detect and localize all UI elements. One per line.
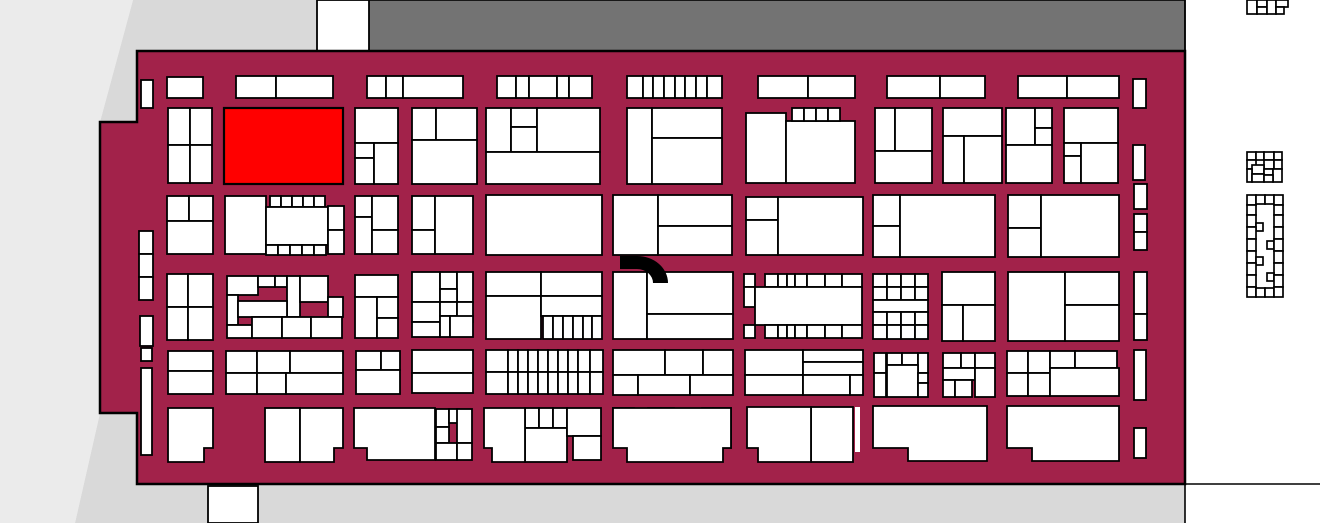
booth[interactable] — [538, 350, 548, 372]
booth[interactable] — [744, 274, 755, 287]
building-footprint — [1247, 152, 1282, 182]
booth[interactable] — [816, 108, 828, 121]
booth[interactable] — [758, 76, 808, 98]
booth[interactable] — [1008, 272, 1065, 341]
booth[interactable] — [508, 372, 518, 394]
booth[interactable] — [287, 276, 300, 317]
footprint-cell — [1257, 0, 1267, 7]
booth[interactable] — [302, 245, 314, 255]
booth[interactable] — [412, 196, 435, 230]
booth[interactable] — [303, 196, 314, 207]
booth[interactable] — [328, 230, 344, 254]
booth[interactable] — [252, 317, 282, 338]
booth[interactable] — [440, 302, 457, 316]
booth[interactable] — [537, 108, 600, 152]
booth[interactable] — [707, 76, 722, 98]
booth[interactable] — [873, 287, 887, 300]
booth[interactable] — [412, 230, 435, 254]
booth[interactable] — [372, 196, 398, 230]
booth[interactable] — [744, 325, 755, 338]
booth[interactable] — [139, 277, 153, 300]
booth[interactable] — [901, 325, 915, 339]
booth[interactable] — [1133, 145, 1145, 180]
booth[interactable] — [573, 316, 583, 339]
booth[interactable] — [511, 108, 537, 127]
booth[interactable] — [1134, 232, 1147, 250]
booth[interactable] — [961, 353, 975, 368]
booth[interactable] — [803, 350, 863, 362]
booth[interactable] — [436, 409, 449, 427]
booth[interactable] — [436, 427, 449, 443]
booth[interactable] — [1081, 143, 1118, 183]
booth[interactable] — [548, 350, 558, 372]
booth[interactable] — [873, 312, 887, 325]
top-entrance-corridor[interactable] — [317, 0, 369, 51]
booth[interactable] — [887, 353, 902, 365]
booth[interactable] — [1134, 314, 1147, 340]
booth[interactable] — [1007, 373, 1028, 396]
booth[interactable] — [168, 145, 190, 183]
booth[interactable] — [168, 371, 213, 394]
booth[interactable] — [266, 207, 328, 245]
booth[interactable] — [525, 428, 567, 462]
booth[interactable] — [486, 108, 511, 152]
booth[interactable] — [943, 368, 975, 380]
booth[interactable] — [1035, 108, 1052, 128]
booth[interactable] — [1050, 368, 1119, 396]
booth[interactable] — [355, 108, 398, 143]
booth[interactable] — [539, 408, 553, 428]
booth[interactable] — [792, 108, 804, 121]
booth[interactable] — [745, 375, 803, 395]
booth[interactable] — [436, 108, 477, 140]
booth[interactable] — [1134, 272, 1147, 314]
booth[interactable] — [1035, 128, 1052, 145]
booth[interactable] — [573, 436, 601, 460]
booth[interactable] — [412, 140, 477, 184]
booth[interactable] — [486, 195, 602, 255]
booth[interactable] — [828, 108, 840, 121]
booth[interactable] — [1065, 305, 1119, 341]
booth[interactable] — [652, 108, 722, 138]
booth[interactable] — [511, 127, 537, 152]
booth[interactable] — [658, 195, 732, 226]
booth[interactable] — [525, 408, 539, 428]
booth[interactable] — [567, 408, 601, 436]
booth[interactable] — [874, 373, 886, 397]
footprint-cell — [1267, 273, 1274, 281]
booth[interactable] — [311, 317, 342, 338]
booth[interactable] — [613, 272, 647, 339]
booth[interactable] — [1064, 156, 1081, 183]
booth[interactable] — [583, 316, 592, 339]
booth[interactable] — [807, 325, 825, 338]
booth[interactable] — [386, 76, 403, 98]
booth[interactable] — [355, 143, 374, 158]
booth[interactable] — [372, 230, 398, 254]
footprint-cell — [1256, 223, 1263, 231]
booth[interactable] — [281, 196, 292, 207]
booth[interactable] — [765, 274, 778, 287]
booth[interactable] — [963, 305, 995, 341]
booth[interactable] — [627, 108, 652, 184]
booth[interactable] — [486, 152, 600, 184]
booth[interactable] — [355, 275, 398, 297]
booth[interactable] — [167, 196, 189, 221]
booth[interactable] — [811, 407, 853, 462]
booth[interactable] — [887, 312, 901, 325]
booth[interactable] — [225, 196, 266, 254]
booth[interactable] — [803, 362, 863, 375]
booth[interactable] — [1134, 184, 1147, 209]
booth[interactable] — [440, 289, 457, 302]
booth[interactable] — [486, 296, 541, 339]
booth[interactable] — [141, 348, 152, 361]
booth[interactable] — [643, 76, 653, 98]
booth[interactable] — [568, 372, 578, 394]
booth[interactable] — [236, 76, 276, 98]
booth[interactable] — [887, 76, 940, 98]
booth[interactable] — [227, 276, 258, 295]
booth[interactable] — [226, 351, 257, 373]
booth[interactable] — [188, 307, 213, 340]
booth[interactable] — [140, 316, 153, 346]
booth[interactable] — [918, 353, 928, 373]
booth[interactable] — [664, 76, 675, 98]
booth[interactable] — [355, 297, 377, 338]
booth[interactable] — [1065, 272, 1119, 305]
booth[interactable] — [873, 195, 900, 226]
booth[interactable] — [943, 353, 961, 368]
booth[interactable] — [141, 368, 152, 455]
booth[interactable] — [875, 108, 895, 151]
booth[interactable] — [613, 195, 658, 255]
booth[interactable] — [486, 350, 508, 372]
booth[interactable] — [746, 220, 778, 255]
booth[interactable] — [804, 108, 816, 121]
booth[interactable] — [167, 307, 188, 340]
booth[interactable] — [227, 325, 252, 338]
booth[interactable] — [139, 254, 153, 277]
booth[interactable] — [613, 408, 731, 462]
booth[interactable] — [1064, 108, 1118, 143]
booth[interactable] — [167, 77, 203, 98]
booth[interactable] — [887, 325, 901, 339]
booth[interactable] — [696, 76, 707, 98]
booth[interactable] — [440, 316, 450, 337]
booth[interactable] — [1067, 76, 1119, 98]
booth[interactable] — [290, 245, 302, 255]
booth[interactable] — [282, 317, 311, 338]
booth[interactable] — [300, 276, 328, 302]
booth[interactable] — [778, 197, 863, 255]
booth[interactable] — [276, 76, 333, 98]
booth[interactable] — [590, 350, 603, 372]
booth[interactable] — [563, 316, 573, 339]
footprint-cell — [1274, 152, 1282, 160]
booth[interactable] — [412, 108, 436, 140]
booth[interactable] — [238, 301, 287, 317]
footprint-cell — [1274, 205, 1283, 215]
booth[interactable] — [167, 221, 213, 254]
booth[interactable] — [1134, 214, 1147, 232]
booth[interactable] — [266, 245, 278, 255]
booth[interactable] — [873, 300, 928, 312]
booth[interactable] — [457, 272, 473, 302]
booth[interactable] — [436, 443, 457, 460]
booth[interactable] — [658, 226, 732, 255]
booth[interactable] — [786, 121, 855, 183]
booth[interactable] — [690, 375, 733, 395]
booth[interactable] — [900, 195, 995, 257]
booth[interactable] — [1006, 145, 1052, 183]
booth[interactable] — [558, 350, 568, 372]
booth[interactable] — [675, 76, 685, 98]
booth[interactable] — [528, 350, 538, 372]
booth[interactable] — [412, 322, 440, 337]
footprint-cell — [1274, 227, 1283, 239]
booth[interactable] — [942, 305, 963, 341]
booth[interactable] — [292, 196, 303, 207]
booth[interactable] — [190, 108, 212, 145]
booth[interactable] — [257, 373, 286, 394]
booth[interactable] — [902, 353, 918, 365]
booth[interactable] — [257, 351, 290, 373]
booth[interactable] — [314, 196, 325, 207]
footprint-cell — [1274, 275, 1283, 287]
booth[interactable] — [955, 380, 972, 397]
booth[interactable] — [569, 76, 592, 98]
booth[interactable] — [787, 325, 795, 338]
booth[interactable] — [975, 353, 995, 368]
booth[interactable] — [746, 197, 778, 220]
footprint-cell — [1252, 165, 1264, 174]
booth[interactable] — [647, 314, 733, 339]
booth[interactable] — [874, 353, 886, 373]
booth[interactable] — [901, 287, 915, 300]
booth[interactable] — [1050, 351, 1075, 368]
booth[interactable] — [188, 274, 213, 307]
booth[interactable] — [613, 350, 665, 375]
booth[interactable] — [328, 206, 344, 230]
booth[interactable] — [685, 76, 696, 98]
booth[interactable] — [901, 312, 915, 325]
booth[interactable] — [377, 297, 398, 318]
booth[interactable] — [915, 325, 928, 339]
booth[interactable] — [795, 325, 807, 338]
booth[interactable] — [803, 375, 850, 395]
booth[interactable] — [541, 272, 602, 296]
booth[interactable] — [557, 76, 569, 98]
booth[interactable] — [915, 274, 928, 287]
booth[interactable] — [578, 350, 590, 372]
booth[interactable] — [943, 108, 1002, 136]
booth[interactable] — [548, 372, 558, 394]
booth[interactable] — [314, 245, 326, 255]
booth[interactable] — [745, 350, 803, 375]
booth[interactable] — [964, 136, 1002, 183]
booth[interactable] — [901, 274, 915, 287]
booth[interactable] — [873, 325, 887, 339]
booth[interactable] — [613, 375, 638, 395]
booth[interactable] — [457, 443, 472, 460]
footprint-cell — [1247, 239, 1256, 251]
booth[interactable] — [450, 316, 473, 337]
booth[interactable] — [355, 196, 372, 217]
booth[interactable] — [795, 274, 807, 287]
booth[interactable] — [1075, 351, 1117, 368]
booth[interactable] — [825, 325, 842, 338]
adjacent-building — [368, 0, 1185, 51]
booth[interactable] — [435, 196, 473, 254]
booth[interactable] — [875, 151, 932, 183]
booth[interactable] — [258, 276, 275, 287]
booth[interactable] — [355, 217, 372, 254]
booth[interactable] — [412, 350, 473, 373]
booth[interactable] — [412, 302, 440, 322]
booth[interactable] — [842, 274, 862, 287]
booth[interactable] — [653, 76, 664, 98]
booth[interactable] — [355, 158, 374, 184]
booth[interactable] — [842, 325, 862, 338]
booth[interactable] — [543, 316, 553, 339]
booth[interactable] — [778, 274, 787, 287]
booth[interactable] — [457, 409, 472, 443]
booth[interactable] — [873, 226, 900, 257]
footprint-cell — [1252, 174, 1264, 182]
booth[interactable] — [755, 287, 862, 325]
booth[interactable] — [518, 350, 528, 372]
footprint-cell — [1274, 195, 1283, 205]
booth[interactable] — [139, 231, 153, 254]
booth[interactable] — [440, 272, 457, 289]
booth[interactable] — [590, 372, 603, 394]
booth[interactable] — [412, 272, 440, 302]
booth[interactable] — [403, 76, 463, 98]
booth[interactable] — [887, 365, 918, 397]
booth[interactable] — [787, 274, 795, 287]
booth[interactable] — [1018, 76, 1067, 98]
booth[interactable] — [497, 76, 516, 98]
booth[interactable] — [915, 287, 928, 300]
booth[interactable] — [627, 76, 643, 98]
booth[interactable] — [887, 274, 901, 287]
booth[interactable] — [290, 351, 343, 373]
booth[interactable] — [541, 296, 602, 316]
booth[interactable] — [367, 76, 386, 98]
booth[interactable] — [553, 408, 567, 428]
booth[interactable] — [943, 136, 964, 183]
booth[interactable] — [665, 350, 703, 375]
booth[interactable] — [1133, 79, 1146, 108]
booth[interactable] — [508, 350, 518, 372]
booth[interactable] — [808, 76, 855, 98]
booth[interactable] — [568, 350, 578, 372]
booth[interactable] — [1064, 143, 1081, 156]
booth[interactable] — [141, 80, 153, 108]
booth[interactable] — [807, 274, 825, 287]
booth[interactable] — [652, 138, 722, 184]
booth[interactable] — [638, 375, 690, 395]
booth[interactable] — [412, 373, 473, 393]
booth[interactable] — [516, 76, 529, 98]
booth[interactable] — [943, 380, 955, 397]
bottom-entrance-corridor[interactable] — [208, 486, 258, 523]
booth[interactable] — [873, 274, 887, 287]
booth[interactable] — [486, 272, 541, 296]
booth[interactable] — [942, 272, 995, 305]
booth[interactable] — [1134, 350, 1146, 400]
footprint-cell — [1265, 195, 1274, 204]
booth[interactable] — [1041, 195, 1119, 257]
booth[interactable] — [356, 370, 400, 394]
booth[interactable] — [529, 76, 557, 98]
booth[interactable] — [265, 408, 300, 462]
aisle-gap-strip — [855, 407, 860, 452]
booth[interactable] — [553, 316, 563, 339]
booth[interactable] — [558, 372, 568, 394]
booth[interactable] — [746, 113, 786, 183]
selected-booth[interactable] — [224, 108, 343, 184]
booth[interactable] — [486, 372, 508, 394]
booth[interactable] — [592, 316, 602, 339]
booth[interactable] — [703, 350, 733, 375]
booth[interactable] — [1028, 373, 1050, 396]
booth[interactable] — [1006, 108, 1035, 145]
booth[interactable] — [1134, 428, 1146, 458]
booth[interactable] — [915, 312, 928, 325]
booth[interactable] — [167, 274, 188, 307]
booth[interactable] — [778, 325, 787, 338]
booth[interactable] — [1007, 351, 1028, 373]
booth[interactable] — [850, 375, 863, 395]
booth[interactable] — [168, 351, 213, 371]
footprint-cell — [1247, 0, 1257, 14]
booth[interactable] — [1028, 351, 1050, 373]
booth[interactable] — [825, 274, 842, 287]
booth[interactable] — [578, 372, 590, 394]
booth[interactable] — [895, 108, 932, 151]
booth[interactable] — [270, 196, 281, 207]
booth[interactable] — [275, 276, 287, 287]
booth[interactable] — [518, 372, 528, 394]
booth[interactable] — [918, 373, 928, 383]
booth[interactable] — [226, 373, 257, 394]
booth[interactable] — [940, 76, 985, 98]
booth[interactable] — [377, 318, 398, 338]
booth[interactable] — [887, 287, 901, 300]
booth[interactable] — [1008, 228, 1041, 257]
booth[interactable] — [168, 108, 190, 145]
booth[interactable] — [356, 351, 381, 370]
booth[interactable] — [189, 196, 213, 221]
booth[interactable] — [286, 373, 343, 394]
booth[interactable] — [975, 368, 995, 397]
booth[interactable] — [744, 287, 755, 307]
booth[interactable] — [765, 325, 778, 338]
booth[interactable] — [528, 372, 538, 394]
booth[interactable] — [918, 383, 928, 397]
booth[interactable] — [190, 145, 212, 183]
booth[interactable] — [538, 372, 548, 394]
booth[interactable] — [1008, 195, 1041, 228]
booth[interactable] — [354, 408, 435, 460]
booth[interactable] — [374, 143, 398, 184]
booth[interactable] — [328, 297, 343, 317]
booth[interactable] — [381, 351, 400, 370]
booth[interactable] — [278, 245, 290, 255]
booth[interactable] — [227, 295, 238, 325]
